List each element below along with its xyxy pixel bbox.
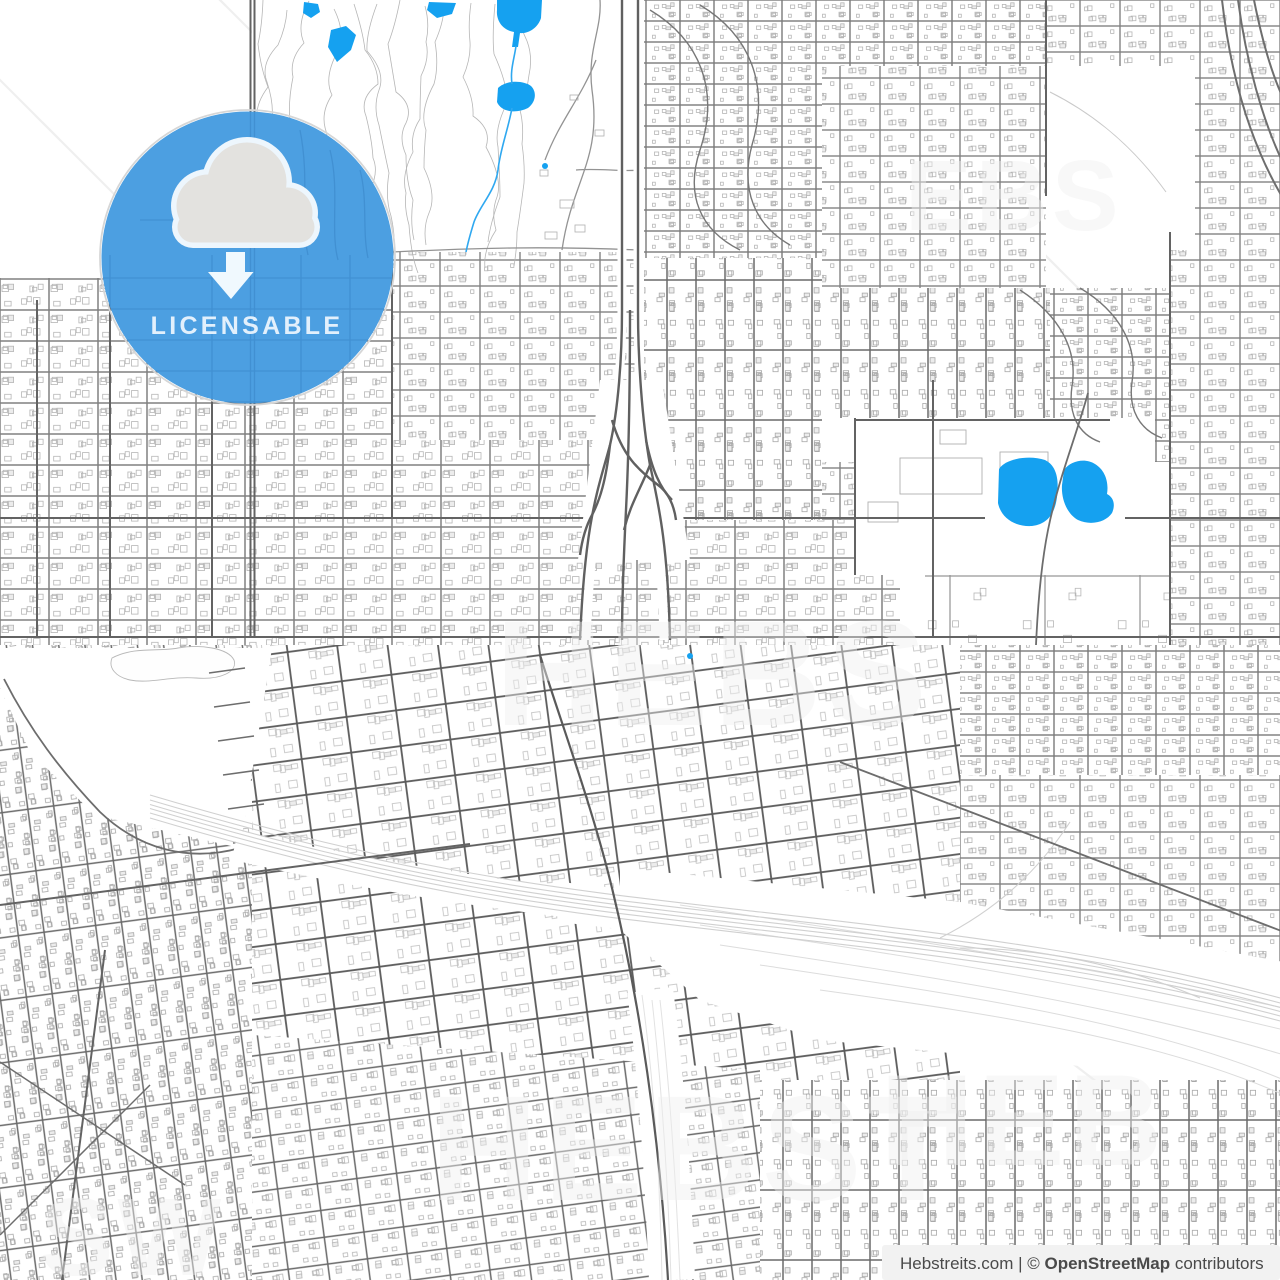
svg-text:HEBS: HEBS bbox=[495, 589, 932, 757]
svg-text:EBS: EBS bbox=[905, 140, 1123, 252]
svg-text:LICENSABLE: LICENSABLE bbox=[151, 312, 344, 340]
svg-text:SW: SW bbox=[40, 1176, 225, 1280]
svg-text:Hebstreits.com | © OpenStreetM: Hebstreits.com | © OpenStreetMap contrib… bbox=[900, 1254, 1264, 1273]
svg-text:HEB: HEB bbox=[880, 1047, 1166, 1193]
